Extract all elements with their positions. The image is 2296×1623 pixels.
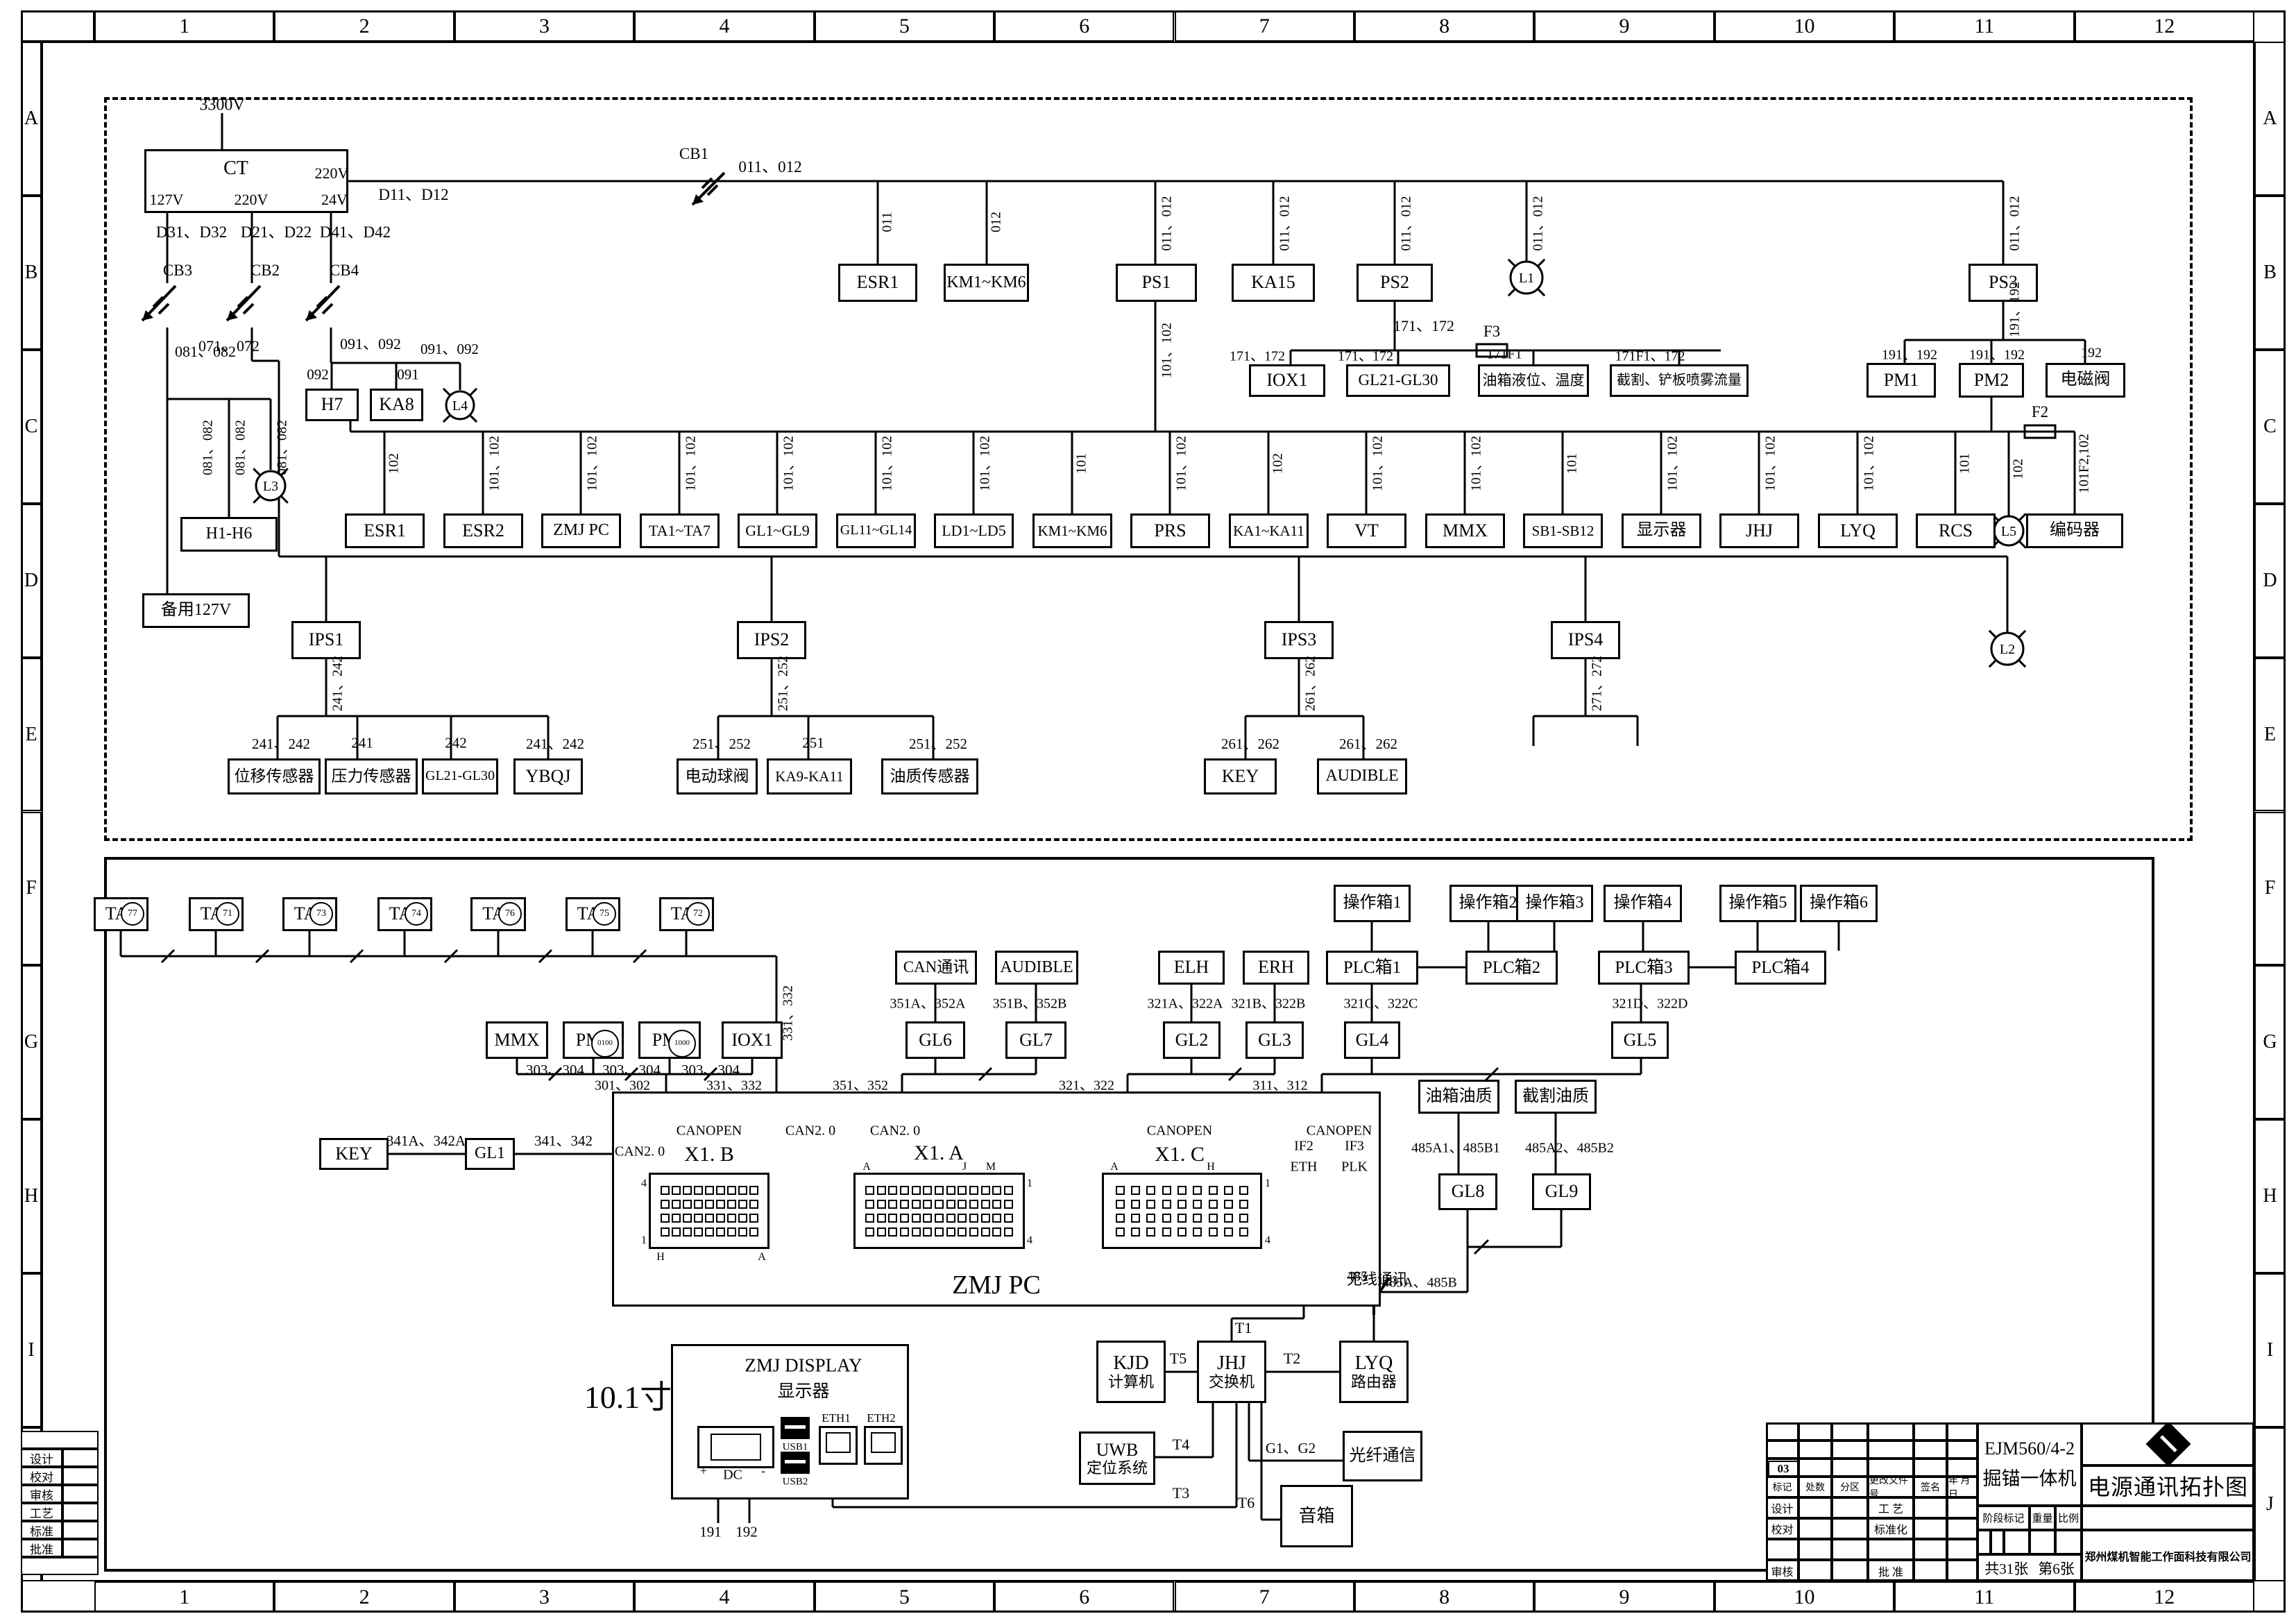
wire-label: 3300V xyxy=(199,96,244,115)
gl6: GL6 xyxy=(905,1021,965,1059)
zmj-pc-row: ZMJ PC xyxy=(541,513,621,548)
wire-label: 092 xyxy=(307,366,329,384)
wire-label-vertical: 101 xyxy=(1565,453,1581,474)
dc-connector-icon xyxy=(697,1426,774,1468)
ps2: PS2 xyxy=(1357,264,1433,302)
gl6-label: GL6 xyxy=(919,1030,952,1050)
wire-label: T5 xyxy=(1170,1350,1187,1368)
wire-label: ETH xyxy=(1291,1159,1318,1175)
ips2-label: IPS2 xyxy=(754,630,790,649)
key-ips-label: KEY xyxy=(1222,767,1259,786)
wire-label: 321B、322B xyxy=(1232,992,1306,1012)
wire-label-vertical: 101、102 xyxy=(876,436,896,491)
wire-label: 192 xyxy=(2081,346,2102,362)
wire-label: ZMJ PC xyxy=(952,1270,1041,1300)
prs-label: PRS xyxy=(1154,521,1186,541)
sig-pad-0 xyxy=(21,1431,99,1449)
lamp-l4-icon: L4 xyxy=(443,389,477,422)
wire-label: 4 xyxy=(1265,1234,1270,1247)
wire-label-vertical: 241、242 xyxy=(326,656,346,711)
ta7-badge: 77 xyxy=(121,902,144,926)
key-comm-label: KEY xyxy=(335,1144,372,1164)
op-box-6: 操作箱6 xyxy=(1800,885,1878,922)
wire-label: D21、D22 xyxy=(241,219,312,242)
eth1-port-icon xyxy=(819,1426,858,1465)
wire-label: CB3 xyxy=(163,262,192,280)
svg-text:L1: L1 xyxy=(1519,271,1534,286)
op-box-6-label: 操作箱6 xyxy=(1810,894,1868,912)
rev-cell-r6c3 xyxy=(1868,1539,1914,1560)
wire-label: 171F1、172 xyxy=(1615,345,1685,365)
wire-label: 171、172 xyxy=(1230,345,1285,365)
wire-label: ZMJ DISPLAY xyxy=(745,1355,862,1377)
wire-label: CANOPEN xyxy=(1307,1123,1372,1139)
audible-comm: AUDIBLE xyxy=(995,951,1078,985)
electric-ball-valve-label: 电动球阀 xyxy=(686,768,749,785)
ka8: KA8 xyxy=(370,389,423,421)
km1-km6-top: KM1~KM6 xyxy=(944,264,1029,302)
fiber-comm-label: 光纤通信 xyxy=(1350,1447,1416,1465)
gl7: GL7 xyxy=(1005,1021,1066,1059)
rev-cell-r6c4 xyxy=(1914,1539,1947,1560)
wire-label: 24V xyxy=(321,191,348,209)
ka15: KA15 xyxy=(1232,264,1315,302)
tank-oil-quality: 油箱油质 xyxy=(1418,1080,1499,1114)
stage-subgrid-5 xyxy=(2055,1530,2082,1554)
ka15-label: KA15 xyxy=(1251,273,1295,292)
pm2-label: PM2 xyxy=(1974,371,2009,390)
plc-box-2-label: PLC箱2 xyxy=(1483,958,1540,977)
rev-cell-r1c5 xyxy=(1947,1441,1978,1459)
uwb: UWB定位系统 xyxy=(1079,1431,1155,1485)
wire-label: 4 xyxy=(641,1178,647,1190)
op-box-5: 操作箱5 xyxy=(1719,885,1796,922)
lyq-row: LYQ xyxy=(1818,513,1898,548)
can-comm-label: CAN通讯 xyxy=(903,959,969,976)
connector-x1b-pins xyxy=(659,1183,759,1239)
op-box-4: 操作箱4 xyxy=(1604,885,1682,922)
connector-x1b xyxy=(649,1173,769,1249)
iox1-comm: IOX1 xyxy=(722,1021,783,1059)
encoder: 编码器 xyxy=(2026,513,2123,548)
wire-label-vertical: 101 xyxy=(1957,453,1973,474)
wire-label: 10.1寸 xyxy=(584,1372,672,1418)
svg-text:L5: L5 xyxy=(2001,524,2016,539)
kjd: KJD计算机 xyxy=(1096,1341,1166,1403)
wire-label-vertical: 101、102 xyxy=(1366,436,1386,491)
wire-label: T6 xyxy=(1238,1494,1255,1512)
wire-label: T4 xyxy=(1173,1436,1189,1454)
ta1-ta7-label: TA1~TA7 xyxy=(649,522,711,539)
ta5-badge: 75 xyxy=(593,902,616,926)
ybqj-label: YBQJ xyxy=(525,767,570,786)
lamp-l5-icon: L5 xyxy=(1991,513,2025,547)
esr2: ESR2 xyxy=(443,513,523,548)
ka9-ka11: KA9-KA11 xyxy=(767,758,852,794)
connector-x1c-pins xyxy=(1112,1183,1252,1239)
ips2: IPS2 xyxy=(737,621,806,659)
drawing-title-cell: 电源通讯拓扑图 xyxy=(2082,1465,2254,1506)
rev-cell-r5c5 xyxy=(1947,1518,1978,1539)
wire-label-vertical: 011 xyxy=(880,212,896,232)
sig-label-0: 设计 xyxy=(21,1449,62,1467)
plc-box-1-label: PLC箱1 xyxy=(1343,958,1401,977)
sig-label-2: 审核 xyxy=(21,1485,62,1503)
ips4-label: IPS4 xyxy=(1568,630,1604,649)
stage-subgrid-3 xyxy=(2004,1530,2030,1554)
wire-label-vertical: 011、012 xyxy=(1527,196,1547,250)
wire-label-vertical: 102 xyxy=(386,453,402,474)
spray-flow-label: 截割、铲板喷雾流量 xyxy=(1617,373,1742,389)
rev-cell-r1c4 xyxy=(1914,1441,1947,1459)
lamp-l1-icon: L1 xyxy=(1508,260,1545,296)
wire-label: 351、352 xyxy=(833,1074,888,1094)
wire-label: 311、312 xyxy=(1252,1074,1307,1094)
can-comm: CAN通讯 xyxy=(895,951,977,985)
plc-box-2: PLC箱2 xyxy=(1465,951,1558,985)
ta6-badge: 76 xyxy=(498,902,522,926)
gl5-label: GL5 xyxy=(1624,1030,1657,1050)
rev-cell-r1c2 xyxy=(1832,1441,1868,1459)
wire-label: 011、012 xyxy=(738,153,801,177)
speaker-label: 音箱 xyxy=(1298,1506,1334,1526)
rev-cell-r0c0 xyxy=(1766,1422,1798,1441)
ta5: TA575 xyxy=(566,897,620,931)
encoder-label: 编码器 xyxy=(2050,522,2100,540)
plc-box-4: PLC箱4 xyxy=(1735,951,1826,985)
wire-label: ETH1 xyxy=(822,1411,851,1425)
wire-label: CB2 xyxy=(250,262,280,280)
scale-cell: 比例 xyxy=(2055,1506,2082,1530)
wire-label: X1. A xyxy=(914,1141,964,1165)
rev-cell-r2c0 xyxy=(1766,1459,1798,1477)
ta7: TA777 xyxy=(94,897,148,931)
ta6: TA676 xyxy=(470,897,526,931)
rev-cell-r4c1 xyxy=(1798,1497,1832,1518)
rcs: RCS xyxy=(1916,513,1996,548)
op-box-1: 操作箱1 xyxy=(1334,885,1411,922)
gl21-gl30-top-label: GL21-GL30 xyxy=(1359,372,1438,389)
gl21-gl30-ips: GL21-GL30 xyxy=(422,758,498,794)
wire-label: IF3 xyxy=(1345,1139,1364,1155)
vt-label: VT xyxy=(1354,521,1379,541)
zmj-pc-row-label: ZMJ PC xyxy=(553,522,609,540)
rev-cell-r7c3: 批 准 xyxy=(1868,1560,1914,1581)
lamp-l2-icon: L2 xyxy=(1989,631,2025,667)
wire-label-vertical: 102 xyxy=(1270,453,1286,474)
rev-cell-r0c2 xyxy=(1832,1422,1868,1441)
wire-label: 1 xyxy=(1027,1178,1032,1190)
ta2: TA272 xyxy=(659,897,714,931)
gl2-label: GL2 xyxy=(1175,1030,1209,1050)
wire-label: 171、172 xyxy=(1393,314,1454,336)
ta1: TA171 xyxy=(189,897,244,931)
wire-label: 341A、342A xyxy=(386,1130,466,1150)
audible-comm-label: AUDIBLE xyxy=(1000,959,1073,977)
wire-label-vertical: 101、102 xyxy=(1170,436,1190,491)
pm1-label: PM1 xyxy=(1884,371,1919,390)
ta3-badge: 73 xyxy=(309,902,333,926)
rcs-label: RCS xyxy=(1939,521,1973,541)
rev-cell-r2c1 xyxy=(1798,1459,1832,1477)
gl7-label: GL7 xyxy=(1019,1030,1053,1050)
wire-label: 261、262 xyxy=(1339,733,1397,754)
audible-ips: AUDIBLE xyxy=(1317,758,1407,794)
wire-label: 242 xyxy=(445,735,467,752)
model-cell: EJM560/4-2 掘锚一体机 xyxy=(1978,1422,2082,1506)
key-comm: KEY xyxy=(319,1138,389,1170)
wire-label: A xyxy=(758,1251,766,1264)
wire-label: M xyxy=(986,1161,996,1173)
wire-label: 091 xyxy=(397,366,419,384)
rev-cell-r4c5 xyxy=(1947,1497,1978,1518)
weight-cell: 重量 xyxy=(2030,1506,2055,1530)
wire-label: 321D、322D xyxy=(1613,992,1688,1012)
wire-label: 251 xyxy=(802,735,824,752)
cutting-oil-quality: 截割油质 xyxy=(1515,1080,1597,1114)
wire-label: 191、192 xyxy=(1969,343,2025,364)
wire-label: 071、072 xyxy=(198,334,260,356)
rev-cell-r1c1 xyxy=(1798,1441,1832,1459)
circuit-breaker-icon xyxy=(227,286,260,321)
wire-label-vertical: 261、262 xyxy=(1299,656,1319,711)
wire-label-vertical: 251、252 xyxy=(772,656,792,711)
pm2: PM2 xyxy=(1959,363,2024,398)
wire-label: 1 xyxy=(1265,1178,1270,1190)
rev-cell-r6c1 xyxy=(1798,1539,1832,1560)
wire-label-vertical: 101、102 xyxy=(1661,436,1681,491)
wire-label: 091、092 xyxy=(420,338,479,359)
rev-cell-r2c4 xyxy=(1914,1459,1947,1477)
op-box-5-label: 操作箱5 xyxy=(1729,894,1787,912)
rev-cell-r2c3 xyxy=(1868,1459,1914,1477)
rev-cell-r7c0: 审核 xyxy=(1766,1560,1798,1581)
tank-oil-quality-label: 油箱油质 xyxy=(1426,1088,1493,1106)
elh: ELH xyxy=(1158,951,1225,985)
usb1-port-icon xyxy=(781,1417,810,1439)
rev-cell-r3c5: 年 月 日 xyxy=(1947,1477,1978,1497)
mmx: MMX xyxy=(1425,513,1505,548)
wire-label-vertical: 102 xyxy=(2011,459,2027,479)
ka1-ka11: KA1~KA11 xyxy=(1229,513,1309,548)
ips1: IPS1 xyxy=(291,621,361,659)
rev-cell-r4c0: 设计 xyxy=(1766,1497,1798,1518)
plc-box-4-label: PLC箱4 xyxy=(1751,958,1809,977)
sig-label-1: 校对 xyxy=(21,1467,62,1485)
uwb-label: UWB xyxy=(1096,1441,1139,1460)
wire-label: 261、262 xyxy=(1221,733,1279,754)
jhj-switch-label: JHJ xyxy=(1217,1353,1246,1374)
wire-label: 127V xyxy=(150,191,184,209)
circuit-breaker-icon xyxy=(142,286,176,321)
wire-label: 220V xyxy=(315,164,349,182)
solenoid-valve: 电磁阀 xyxy=(2046,363,2125,398)
wire-label: T1 xyxy=(1235,1319,1252,1337)
rev-cell-r2c2 xyxy=(1832,1459,1868,1477)
wire-label: D41、D42 xyxy=(320,219,391,242)
wire-label: 191 xyxy=(699,1524,722,1541)
wire-label: CANOPEN xyxy=(1147,1123,1212,1139)
plc-box-1: PLC箱1 xyxy=(1326,951,1418,985)
sig-blank-0 xyxy=(62,1449,99,1467)
wire-label: D11、D12 xyxy=(378,181,448,205)
wire-label: G1、G2 xyxy=(1266,1437,1316,1458)
h7-label: H7 xyxy=(321,395,343,414)
wire-label: 171F1 xyxy=(1486,347,1522,363)
rev-cell-r0c4 xyxy=(1914,1422,1947,1441)
wire-label: 301、302 xyxy=(595,1074,650,1094)
ips1-label: IPS1 xyxy=(309,630,344,649)
wire-label-vertical: 011、012 xyxy=(1395,196,1415,250)
drawing-sheet: L1L2L3L4L5 11223344556677889910101111121… xyxy=(0,0,2296,1623)
wire-label: 251、252 xyxy=(909,733,967,754)
gl21-gl30-top: GL21-GL30 xyxy=(1346,364,1450,397)
rev-cell-r7c2 xyxy=(1832,1560,1868,1581)
plc-box-3-label: PLC箱3 xyxy=(1615,958,1672,977)
usb2-port-icon xyxy=(781,1452,810,1474)
ta2-badge: 72 xyxy=(686,902,710,926)
spray-flow: 截割、铲板喷雾流量 xyxy=(1610,364,1749,397)
iox1-top-label: IOX1 xyxy=(1266,371,1307,390)
rev-cell-r7c1 xyxy=(1798,1560,1832,1581)
circuit-breaker-icon xyxy=(306,286,339,321)
jhj-row-label: JHJ xyxy=(1746,521,1773,541)
wire-label: 4 xyxy=(1027,1234,1032,1247)
op-box-4-label: 操作箱4 xyxy=(1614,894,1672,912)
eth2-port-icon xyxy=(864,1426,903,1465)
wire-label: H xyxy=(656,1251,665,1264)
rev-cell-r7c4 xyxy=(1914,1560,1947,1581)
audible-ips-label: AUDIBLE xyxy=(1325,767,1398,785)
sig-blank-1 xyxy=(62,1467,99,1485)
stage-mark-cell: 阶段标记 xyxy=(1978,1506,2030,1530)
wire-label: 485A1、485B1 xyxy=(1411,1137,1500,1157)
oil-quality-sensor-label: 油质传感器 xyxy=(890,768,970,785)
wire-label: 241、242 xyxy=(252,733,310,754)
jhj-switch: JHJ交换机 xyxy=(1197,1341,1266,1403)
machine-text: 掘锚一体机 xyxy=(1983,1463,2077,1490)
op-box-3: 操作箱3 xyxy=(1516,885,1593,922)
tank-level-temp: 油箱液位、温度 xyxy=(1478,364,1589,397)
ta4-badge: 74 xyxy=(405,902,428,926)
ld1-ld5: LD1~LD5 xyxy=(934,513,1014,548)
wire-label: F2 xyxy=(2032,403,2048,421)
svg-text:L4: L4 xyxy=(452,398,468,414)
wire-label-vertical: 191、192 xyxy=(2003,282,2023,337)
wire-label-vertical: 101 xyxy=(1074,453,1090,474)
rev-cell-r0c1 xyxy=(1798,1422,1832,1441)
wire-label-vertical: 081、082 xyxy=(229,420,249,475)
lyq-row-label: LYQ xyxy=(1840,521,1876,541)
h7: H7 xyxy=(305,389,359,421)
wire-label-vertical: 011、012 xyxy=(1155,196,1175,250)
rev-cell-r6c2 xyxy=(1832,1539,1868,1560)
kjd-sublabel: 计算机 xyxy=(1108,1374,1154,1391)
wire-label: 无线通讯 xyxy=(1347,1267,1408,1289)
ta3: TA373 xyxy=(282,897,337,931)
company-logo-icon xyxy=(2145,1422,2191,1465)
sb1-sb12-label: SB1-SB12 xyxy=(1532,523,1595,539)
rev-cell-r0c3 xyxy=(1868,1422,1914,1441)
vt: VT xyxy=(1327,513,1406,548)
jhj-switch-sublabel: 交换机 xyxy=(1209,1374,1255,1391)
ka1-ka11-label: KA1~KA11 xyxy=(1233,523,1304,539)
connector-x1a-pins xyxy=(864,1183,1014,1239)
mmx-label: MMX xyxy=(1443,521,1488,541)
wire-label: 192 xyxy=(735,1524,758,1541)
ps2-label: PS2 xyxy=(1380,273,1409,292)
logo-cell xyxy=(2082,1422,2254,1465)
svg-text:L3: L3 xyxy=(263,479,278,494)
company-cell: 郑州煤机智能工作面科技有限公司 xyxy=(2082,1530,2254,1581)
sheet-count-cell: 共31张 第6张 xyxy=(1978,1554,2082,1581)
svg-text:L2: L2 xyxy=(2000,642,2015,657)
pm2-comm-badge: 0100 xyxy=(591,1030,619,1057)
pressure-sensor: 压力传感器 xyxy=(325,758,418,794)
pm1: PM1 xyxy=(1866,363,1936,398)
h1-h6: H1-H6 xyxy=(180,517,278,552)
empty-cell-right xyxy=(2082,1506,2254,1530)
tank-level-temp-label: 油箱液位、温度 xyxy=(1483,373,1585,389)
wire-label: USB2 xyxy=(783,1477,808,1488)
mmx-comm-label: MMX xyxy=(494,1030,539,1050)
display-row: 显示器 xyxy=(1622,513,1701,548)
wire-label: DC xyxy=(723,1468,742,1484)
esr1-top: ESR1 xyxy=(838,264,917,302)
rev-cell-r5c4 xyxy=(1914,1518,1947,1539)
wire-label-vertical: 101、102 xyxy=(1759,436,1779,491)
model-text: EJM560/4-2 xyxy=(1984,1438,2075,1459)
wire-label: A xyxy=(862,1161,871,1173)
rev-cell-r0c5 xyxy=(1947,1422,1978,1441)
gl5: GL5 xyxy=(1611,1021,1669,1059)
wire-label: X1. B xyxy=(684,1143,734,1166)
op-box-2-label: 操作箱2 xyxy=(1459,894,1517,912)
op-box-1-label: 操作箱1 xyxy=(1343,894,1402,912)
sig-blank-5 xyxy=(62,1539,99,1557)
prs: PRS xyxy=(1130,513,1210,548)
op-box-3-label: 操作箱3 xyxy=(1526,894,1584,912)
sig-blank-2 xyxy=(62,1485,99,1503)
gl1-gl9-label: GL1~GL9 xyxy=(745,522,810,539)
wire-label-vertical: 011、012 xyxy=(2003,196,2023,250)
wire-label: 191、192 xyxy=(1882,343,1937,364)
km1-km6-top-label: KM1~KM6 xyxy=(946,274,1026,292)
ips3: IPS3 xyxy=(1264,621,1334,659)
wire-label-vertical: 101、102 xyxy=(581,436,601,491)
sig-label-4: 标准 xyxy=(21,1521,62,1539)
circuit-breaker-icon xyxy=(692,173,724,205)
displacement-sensor: 位移传感器 xyxy=(228,758,321,794)
stage-subgrid-4 xyxy=(2030,1530,2055,1554)
sig-label-5: 批准 xyxy=(21,1539,62,1557)
sig-pad-1 xyxy=(21,1557,99,1575)
oil-quality-sensor: 油质传感器 xyxy=(881,758,978,794)
sb1-sb12: SB1-SB12 xyxy=(1523,513,1603,548)
rev-cell-r3c4: 签名 xyxy=(1914,1477,1947,1497)
op-box-2: 操作箱2 xyxy=(1449,885,1527,922)
connector-x1a xyxy=(853,1173,1025,1249)
wire-label: 351B、352B xyxy=(993,992,1067,1012)
lyq-router: LYQ路由器 xyxy=(1339,1341,1409,1403)
wire-label-vertical: 331、332 xyxy=(776,985,797,1041)
gl2: GL2 xyxy=(1163,1021,1221,1059)
wire-label-vertical: 101、102 xyxy=(1857,436,1878,491)
rev-cell-r6c0 xyxy=(1766,1539,1798,1560)
wire-label: A xyxy=(1110,1161,1119,1173)
displacement-sensor-label: 位移传感器 xyxy=(235,768,314,785)
wire-label: CAN2. 0 xyxy=(615,1144,665,1160)
